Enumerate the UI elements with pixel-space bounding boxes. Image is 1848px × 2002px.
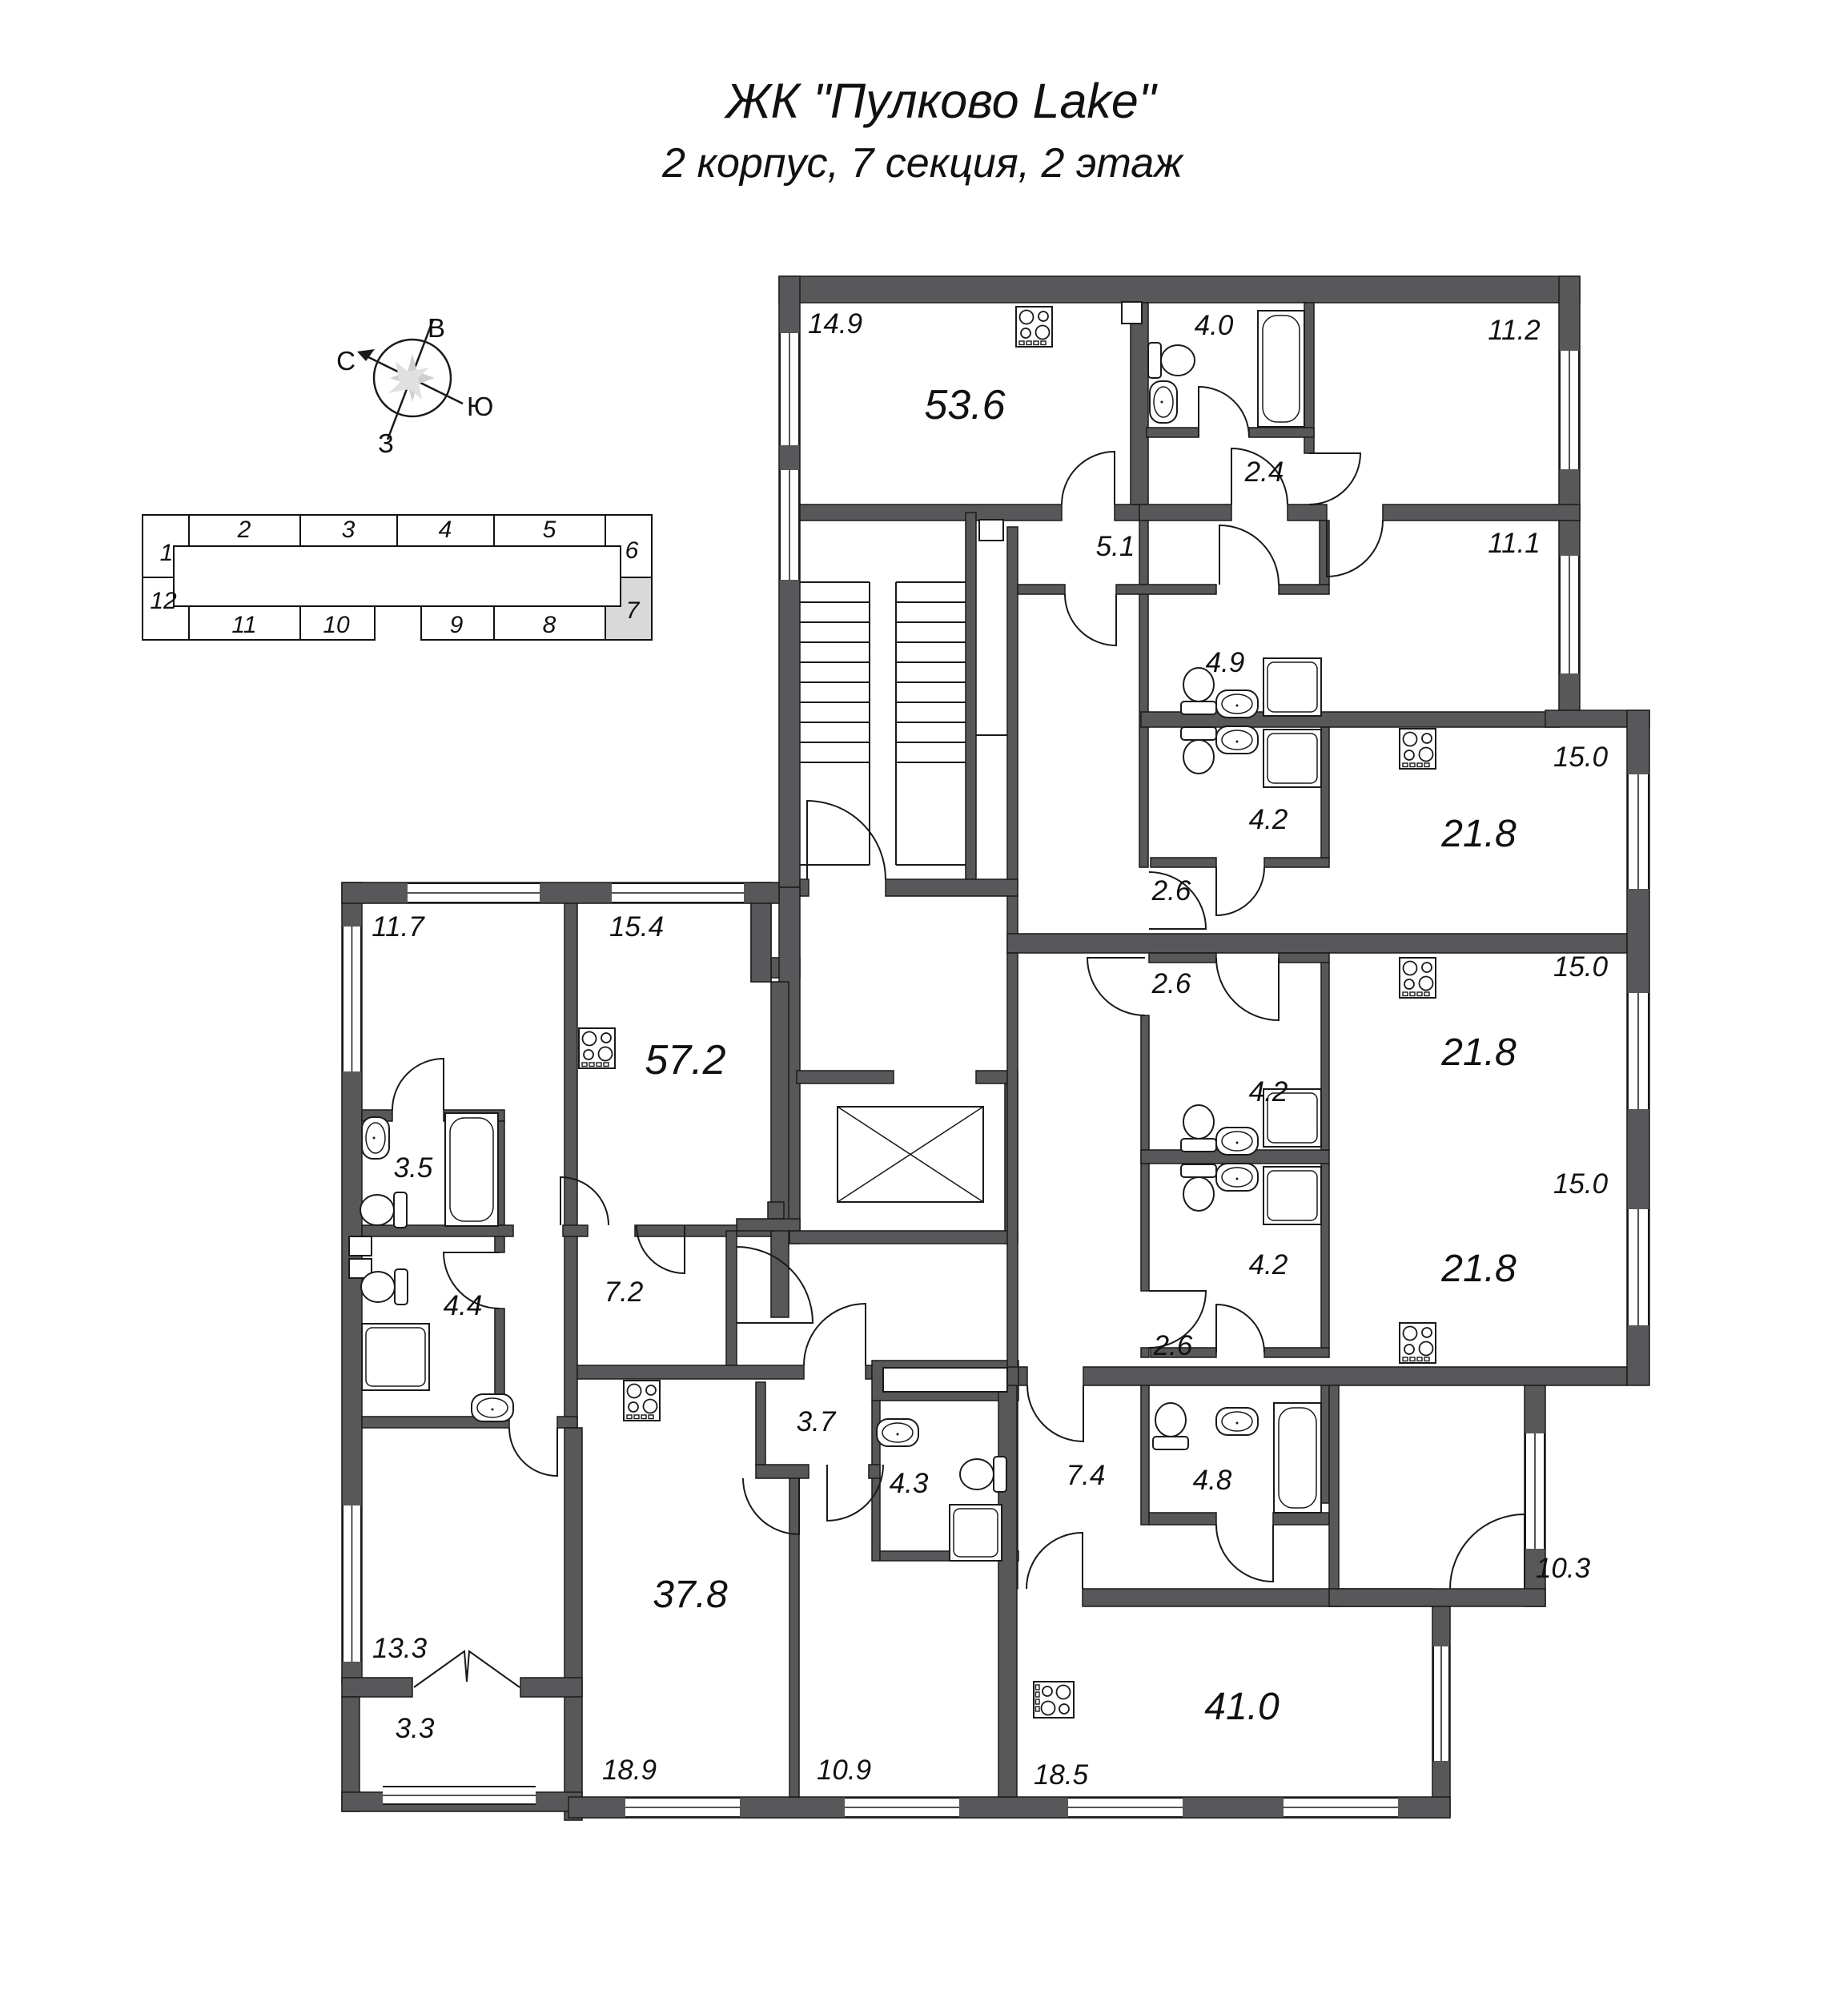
svg-text:7: 7: [626, 597, 641, 624]
svg-text:В: В: [428, 313, 445, 343]
svg-text:21.8: 21.8: [1440, 813, 1517, 855]
svg-text:11.2: 11.2: [1488, 315, 1541, 346]
svg-text:7.2: 7.2: [605, 1276, 644, 1308]
svg-text:2 корпус, 7 секция, 2 этаж: 2 корпус, 7 секция, 2 этаж: [661, 140, 1184, 187]
svg-text:1: 1: [160, 540, 174, 566]
svg-text:2.6: 2.6: [1151, 875, 1191, 907]
svg-text:18.9: 18.9: [602, 1755, 657, 1786]
svg-text:15.0: 15.0: [1553, 742, 1609, 773]
svg-text:6: 6: [625, 537, 639, 564]
svg-text:С: С: [336, 346, 356, 376]
svg-text:3.3: 3.3: [396, 1713, 435, 1744]
svg-text:З: З: [378, 428, 394, 458]
svg-text:3: 3: [342, 517, 356, 543]
svg-text:10.3: 10.3: [1536, 1553, 1591, 1584]
svg-text:11: 11: [231, 612, 256, 638]
svg-text:5.1: 5.1: [1096, 531, 1135, 562]
svg-text:4.8: 4.8: [1193, 1465, 1232, 1496]
svg-text:10.9: 10.9: [817, 1755, 871, 1786]
svg-text:3.5: 3.5: [394, 1152, 433, 1184]
svg-text:13.3: 13.3: [372, 1633, 428, 1664]
svg-text:5: 5: [543, 517, 556, 543]
svg-text:53.6: 53.6: [924, 382, 1005, 428]
svg-text:21.8: 21.8: [1440, 1248, 1517, 1290]
svg-text:14.9: 14.9: [808, 308, 862, 340]
svg-text:2.6: 2.6: [1153, 1330, 1193, 1361]
svg-text:3.7: 3.7: [797, 1406, 837, 1437]
svg-text:21.8: 21.8: [1440, 1031, 1517, 1074]
svg-text:11.1: 11.1: [1488, 528, 1541, 559]
svg-text:7.4: 7.4: [1067, 1460, 1106, 1491]
svg-text:2: 2: [237, 517, 251, 543]
svg-text:ЖК "Пулково Lake": ЖК "Пулково Lake": [724, 74, 1158, 128]
svg-text:2.4: 2.4: [1244, 456, 1284, 488]
svg-text:Ю: Ю: [467, 392, 493, 421]
svg-text:12: 12: [150, 588, 177, 614]
svg-text:4: 4: [439, 517, 452, 543]
svg-text:4.2: 4.2: [1249, 1076, 1288, 1108]
svg-text:15.0: 15.0: [1553, 1168, 1609, 1200]
svg-text:9: 9: [450, 612, 464, 638]
svg-text:4.2: 4.2: [1249, 804, 1288, 835]
svg-text:8: 8: [543, 612, 556, 638]
svg-text:41.0: 41.0: [1204, 1686, 1280, 1728]
svg-text:15.4: 15.4: [609, 911, 664, 943]
svg-text:18.5: 18.5: [1034, 1759, 1089, 1791]
svg-text:15.0: 15.0: [1553, 951, 1609, 983]
svg-text:4.2: 4.2: [1249, 1249, 1288, 1280]
svg-text:4.4: 4.4: [444, 1290, 483, 1321]
svg-text:4.0: 4.0: [1195, 310, 1234, 341]
svg-text:57.2: 57.2: [645, 1037, 725, 1083]
svg-text:4.9: 4.9: [1206, 647, 1245, 678]
svg-text:10: 10: [323, 612, 350, 638]
svg-text:37.8: 37.8: [653, 1574, 728, 1616]
svg-text:4.3: 4.3: [890, 1468, 929, 1499]
svg-text:2.6: 2.6: [1151, 968, 1191, 999]
svg-text:11.7: 11.7: [372, 911, 425, 943]
